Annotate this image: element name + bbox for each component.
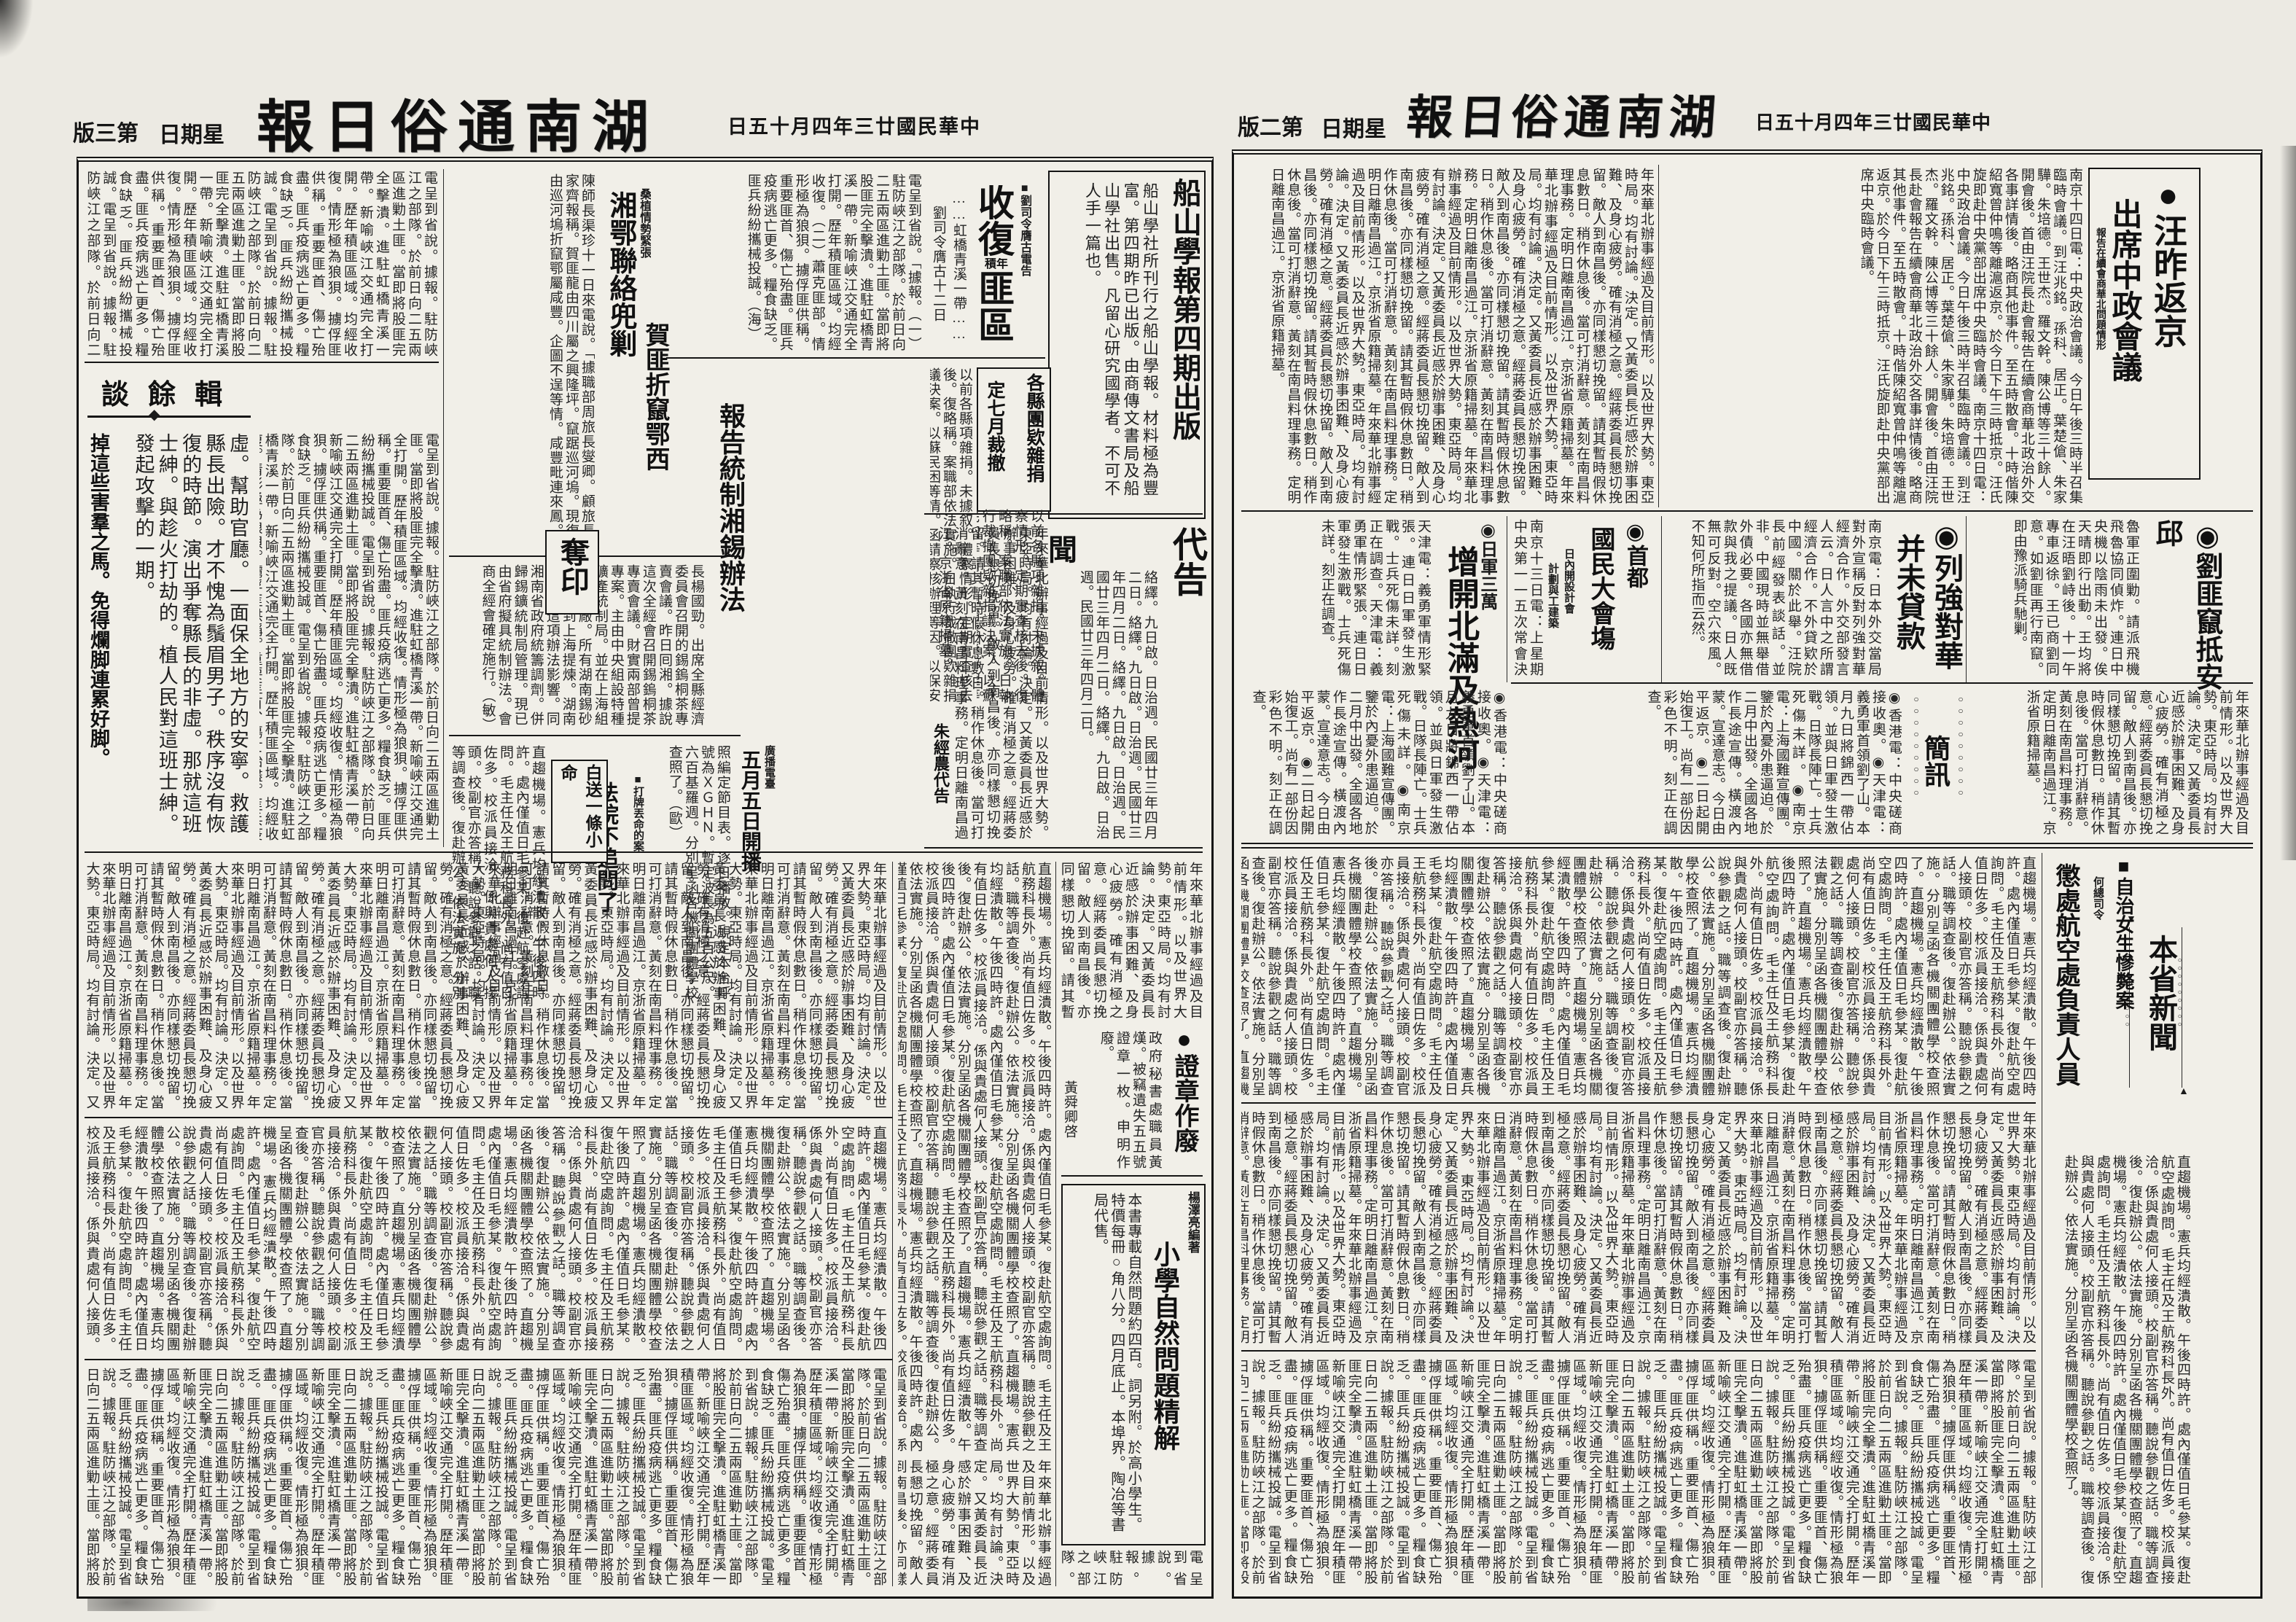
xi-headline: 報告統制湘錫辦法	[711, 402, 749, 730]
page2: ●汪昨返京 出席中政會議 報告在續會商華北問題情形 南京十四日電：中央政治會議。…	[1232, 149, 2262, 1599]
xiaoxue-ad-box: 楊澤亮編著 小學自然問題精解 本書專載自然問題約四百。詞另附。於高小學生。特價每…	[1061, 1184, 1206, 1545]
shoudu-sub-1: 日內開設計會	[1562, 548, 1575, 636]
jianxun-title: 簡訊	[1916, 735, 1954, 822]
lieqiang-headline-1: ◉列強對華	[1925, 519, 1967, 679]
hefei-body: 陳師長渠珍十一日來電說。「據職部周旅長燮卿。顧旅長家齊報稱。賀匪龍由四川屬之興隆…	[449, 173, 595, 538]
text-block-p2-topleft: 年來華北辦事經過及目前情形。以及世界大勢。東亞時局。均有討論。決定。又黃委員長近…	[1241, 168, 1654, 504]
shoudu-headline-1: ◉首都	[1619, 519, 1651, 614]
page2-newspaper-title: 報日俗通南湖	[1405, 80, 1724, 147]
airport-story: 直趨機場。憲兵均經潰散。午後四時許。處內僅值日毛參某。復赴航空處詢問。毛主任及王…	[898, 862, 1051, 1452]
text-block-topleft: 電呈到省說。據報。駐防峽江之部隊。於前日向二五兩區進勦土匪。當即將股匪完全擊潰。…	[85, 171, 437, 357]
text-block-right-upper: 年來華北辦事經過及目前情形。以及世界大勢。東亞時局。均有討論。決定。又黃委員長近…	[1061, 862, 1203, 1019]
text-block-bottom-2: 直趨機場。憲兵均經潰散。午後四時許。處內僅值日毛參某。復赴航空處詢問。毛主任及王…	[85, 1126, 886, 1352]
page3-edition-label: 版三第	[73, 115, 138, 147]
daigao-body: 絡繹。九日啟。日治週。民國廿三年四月二日。絡繹。九日啟。日治週。民國廿三年四月二…	[1053, 570, 1157, 840]
chuanshan-ad-body: 船山學社所刊行之船山學報。材料極為豐富。第四期昨已出版。由商傳文書局及船山學社出…	[1057, 182, 1159, 507]
zinu-kicker: 何總司令	[2091, 876, 2104, 942]
rijun-body: 天津電：義勇軍情形緊張。連日日軍發生激戰。士兵死傷未詳。刻正在調查。天津電：義勇…	[1241, 519, 1431, 677]
lieqiang-body: 南京電：日本外交當局對外宣稱反對列強對華經濟合作。外交部發言人云。日人言中之所謂…	[1667, 519, 1881, 677]
xiaoxue-title: 小學自然問題精解	[1146, 1241, 1184, 1532]
page2-weekday: 日期星	[1321, 111, 1386, 143]
text-block-bottom-1: 年來華北辦事經過及目前情形。以及世界大勢。東亞時局。均有討論。決定。又黃委員長近…	[85, 862, 886, 1110]
wang-kicker: 報告在續會商華北問題情形	[2093, 227, 2106, 468]
duoyin-headline: 奪印	[545, 530, 599, 615]
newspaper-scan: 版三第 日期星 報日俗通南湖 日五十月四年三廿國民華中 版二第 日期星 報日俗通…	[0, 0, 2296, 1622]
xiaoxue-body: 本書專載自然問題約四百。詞另附。於高小學生。特價每冊○角八分。四月底止。本埠界。…	[1069, 1193, 1141, 1532]
shoudu-sub-2: 計劃與工建築	[1546, 563, 1559, 650]
wang-headline-1: ●汪昨返京	[2144, 176, 2192, 395]
daigao-big-char: 聞	[1048, 526, 1077, 569]
shoufu-subline: ……虹橋青溪一帶……	[950, 191, 967, 344]
court-kicker: ■打牌丟命的案	[631, 774, 644, 869]
zhengzhang-signature: 黃舜卿啓	[1061, 1080, 1077, 1168]
text-block-right-lower: 電呈到省說。據報。駐防峽江之部隊。於前日向二五兩區進勦土匪。當即將股匪完全擊潰。…	[1061, 1550, 1203, 1586]
shoudu-body: 南京十三日電：上星期中央第一一五次常會決定後。即督同政府趕速興工修備各案。將來決…	[1512, 519, 1543, 677]
wang-body: 南京十四日電：中央政治會議。今日午後三時半召集臨時會議。到汪兆銘。孫科、居正。葉…	[1664, 168, 2082, 504]
shoufu-dateline: 劉司令膺古十二日	[930, 206, 946, 351]
jianxun-title-block: ○○○○○○○○○ 簡訊 ○○○○○○○○○	[1910, 694, 1966, 840]
jianxun-items-2: ◉香港電：中央磋商接收奧。◉天津電：義勇軍首領劉了山。本月九日將錦西一帶佔領。並…	[1241, 690, 1507, 835]
yutan-closing: 掉這些害羣之馬。免得爛脚連累好脚。	[85, 433, 113, 841]
tuankuan-box: 各縣團欵雜捐 定七月裁撤	[977, 367, 1051, 512]
chengchu-headline: 懲處航空處負責人員	[2047, 863, 2083, 1147]
benxing-right-body: 直趨機場。憲兵均經潰散。午後四時許。處內僅值日毛參某。復赴航空處詢問。毛主任及王…	[2047, 1155, 2190, 1585]
chuanshan-ad-box: 船山學報第四期出版 船山學社所刊行之船山學報。材料極為豐富。第四期昨已出版。由商…	[1048, 171, 1206, 519]
shoufu-kicker: ■劉司令膺古電告	[1018, 182, 1031, 328]
shoufu-body: 電呈到省說。「據報。（一）駐防峽江之部隊。於前日向二五兩區進勦土匪。當即將股匪完…	[666, 173, 921, 351]
zinu-headline: ■自治女生慘斃案	[2110, 856, 2137, 1024]
yutan-divider-ornament: ◆	[149, 405, 160, 424]
text-block-bottom-3: 電呈到省說。據報。駐防峽江之部隊。於前日向二五兩區進勦土匪。當即將股匪完全擊潰。…	[85, 1368, 886, 1586]
yutan-body: 虛。幫助官廳。一面保全地方的安寧。救護縣長出險。才不愧為鬚眉男子。秩序沒有恢復的…	[104, 433, 249, 841]
daigao-signature: 朱經農代告	[929, 723, 952, 840]
court-box-headline: 白送一條小命	[551, 760, 608, 863]
page2-edition-label: 版二第	[1238, 109, 1303, 141]
shoudu-headline-2: 國民大會塲	[1582, 526, 1618, 672]
scan-smudge-top-left	[0, 0, 34, 58]
scan-smudge-right-edge	[2280, 146, 2296, 860]
radio-kicker: 廣播電臺	[762, 745, 776, 811]
daigao-title: 代告	[1160, 526, 1211, 636]
page3-weekday: 日期星	[159, 117, 224, 149]
hefei-headline2: 湘鄂聯絡兜剿	[601, 191, 641, 432]
airport-story-2: 年來華北辦事經過及目前情形。以及世界大勢。東亞時局。均有討論。決定。又黃委員長近…	[898, 1459, 1051, 1586]
text-block-mid: 電呈到省說。據報。駐防峽江之部隊。於前日向二五兩區進勦土匪。當即將股匪完全擊潰。…	[259, 433, 439, 841]
zhengzhang-headline: ●證章作廢	[1166, 1026, 1202, 1172]
wang-headline-2: 出席中政會議	[2102, 198, 2147, 468]
chuanshan-ad-title: 船山學報第四期出版	[1169, 178, 1200, 510]
benxing-body-2: 年來華北辦事經過及目前情形。以及世界大勢。東亞時局。均有討論。決定。又黃委員長近…	[1241, 1111, 2036, 1344]
benxing-body-1: 直趨機場。憲兵均經潰散。午後四時許。處內僅值日毛參某。復赴航空處詢問。毛主任及王…	[1241, 856, 2036, 1096]
yutan-title: 談餘輯	[95, 372, 248, 412]
lieqiang-headline-2: 并未貸款	[1887, 534, 1929, 679]
xiaoxue-author: 楊澤亮編著	[1185, 1191, 1200, 1286]
shoufu-headline: 收復 積年 匪區	[974, 185, 1019, 353]
jianxun-items: ◉香港電：中央磋商接收奧。◉天津電：義勇軍首領劉了山。本月九日將錦西一帶佔領。並…	[1512, 690, 1902, 835]
zhengzhang-body: 政府秘書處職員黃熯。被竊遺失五五號證章一枚。申明作廢。	[1093, 1031, 1162, 1169]
liufei-headline: ◉劉匪竄抵安邱	[2147, 519, 2227, 709]
page3-newspaper-title: 報日俗通南湖	[257, 82, 659, 163]
jianxun-right-tail: 年來華北辦事經過及目前情形。以及世界大勢。東亞時局。均有討論。決定。又黃委員長近…	[1972, 690, 2249, 835]
liufei-body: 魯軍正圍勦。請派飛機飛魯協同偵炸。連日中央機以陰雨未出發。俟天晴即行出動。王均將…	[1972, 519, 2139, 677]
page3-date: 日五十月四年三廿國民華中	[727, 111, 981, 139]
page3: 船山學報第四期出版 船山學社所刊行之船山學報。材料極為豐富。第四期昨已出版。由商…	[77, 157, 1214, 1599]
hefei-headline1: 賀匪折竄鄂西	[637, 322, 673, 541]
wang-headline-box: ●汪昨返京 出席中政會議 報告在續會商華北問題情形	[2088, 168, 2201, 480]
page2-date: 日五十月四年三廿國民華中	[1755, 108, 1991, 135]
benxing-body-3: 電呈到省說。據報。駐防峽江之部隊。於前日向二五兩區進勦土匪。當即將股匪完全擊潰。…	[1241, 1359, 2036, 1585]
